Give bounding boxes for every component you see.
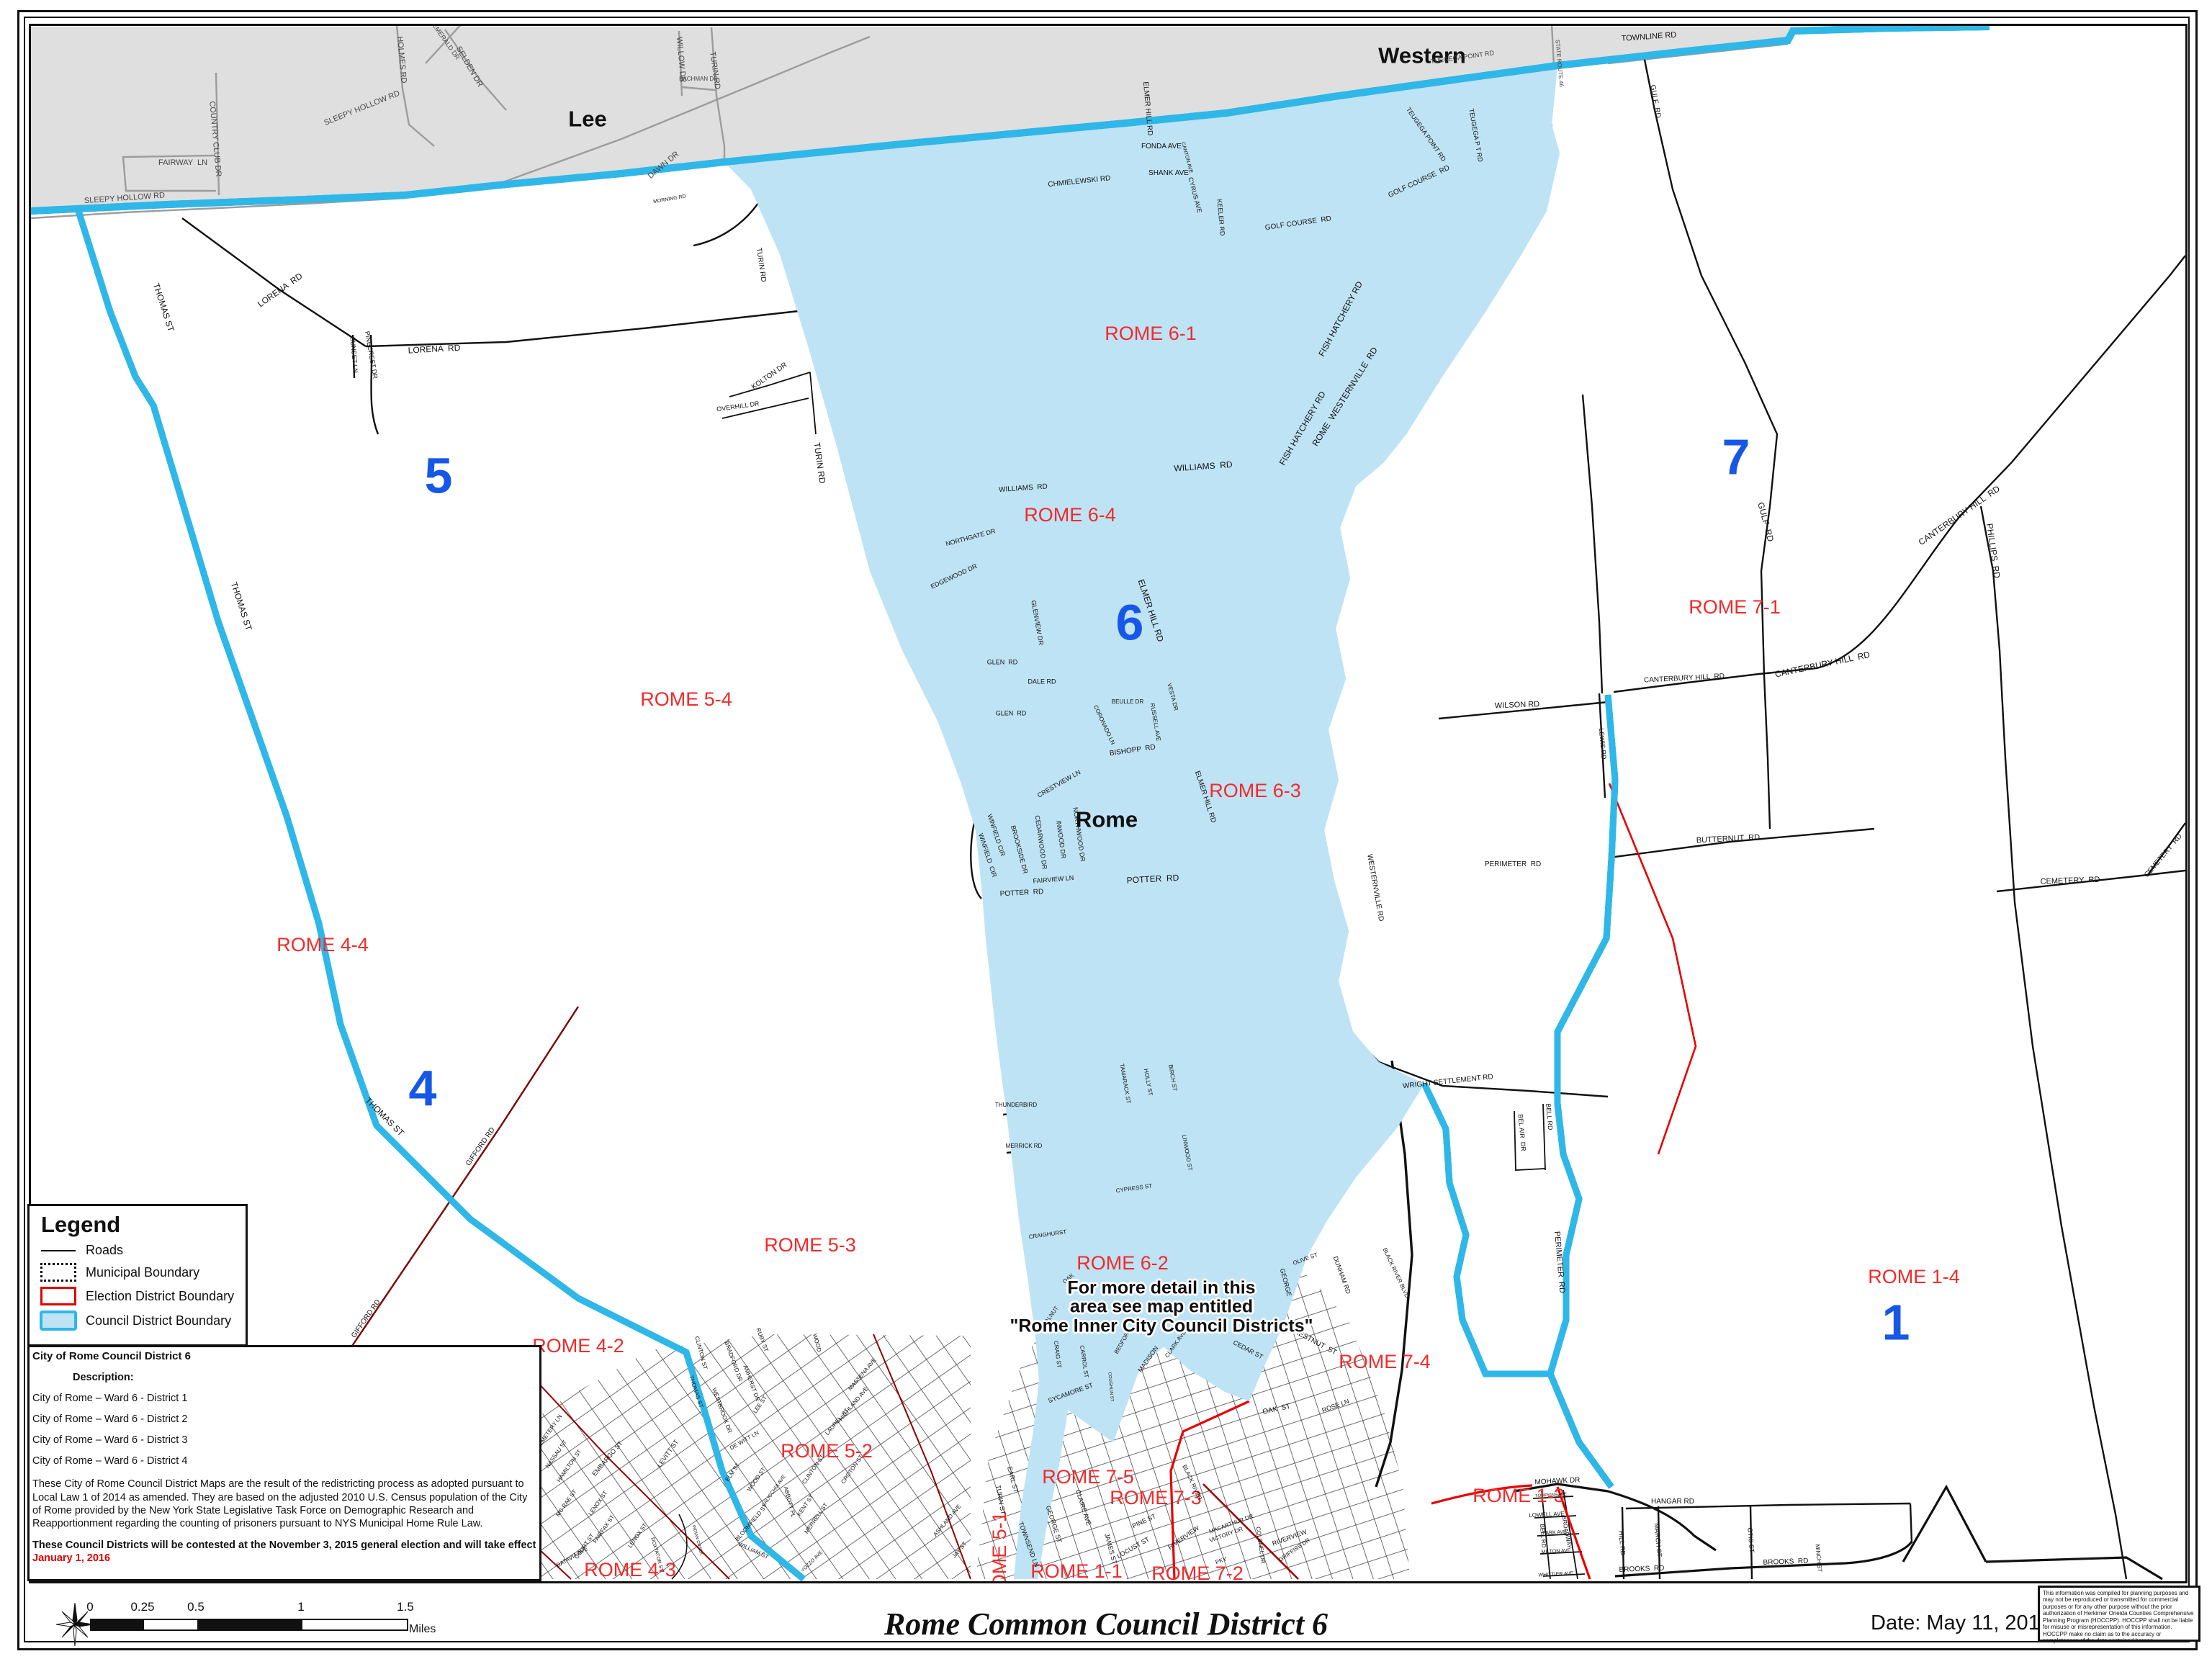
district-line: City of Rome – Ward 6 - District 1 xyxy=(32,1392,539,1405)
legend-item-council-boundary: Council District Boundary xyxy=(40,1310,246,1331)
scale-tick: 1 xyxy=(297,1600,304,1614)
description-paragraph: These City of Rome Council District Maps… xyxy=(32,1478,536,1530)
scale-tick: 0.25 xyxy=(130,1600,154,1614)
legend-item-roads: Roads xyxy=(40,1243,246,1258)
legend: Legend Roads Municipal Boundary Election… xyxy=(27,1204,248,1346)
district-line: City of Rome – Ward 6 - District 3 xyxy=(32,1434,539,1447)
map-date: Date: May 11, 2015 xyxy=(1871,1611,2051,1635)
footer: 00.250.511.5 Miles Rome Common Council D… xyxy=(29,1581,2183,1639)
description-heading: City of Rome Council District 6 xyxy=(32,1350,539,1364)
description-subheading: Description: xyxy=(73,1371,539,1384)
scale-bar xyxy=(90,1619,408,1631)
disclaimer-box: This information was compiled for planni… xyxy=(2038,1586,2200,1642)
scale-tick: 1.5 xyxy=(397,1600,414,1614)
legend-item-municipal-boundary: Municipal Boundary xyxy=(40,1263,246,1282)
legend-title: Legend xyxy=(41,1212,246,1238)
legend-item-election-boundary: Election District Boundary xyxy=(40,1287,246,1305)
scale-tick: 0 xyxy=(86,1600,93,1614)
district-line: City of Rome – Ward 6 - District 4 xyxy=(32,1455,539,1467)
election-boundary-icon xyxy=(40,1287,77,1305)
scale-ticks: 00.250.511.5 xyxy=(29,1600,432,1616)
municipal-boundary-icon xyxy=(40,1263,77,1282)
roads-line-icon xyxy=(40,1250,77,1251)
description-box: City of Rome Council District 6 Descript… xyxy=(27,1345,541,1581)
district-line: City of Rome – Ward 6 - District 2 xyxy=(32,1413,539,1426)
council-boundary-icon xyxy=(40,1310,77,1331)
scale-tick: 0.5 xyxy=(187,1600,204,1614)
effective-date: January 1, 2016 xyxy=(32,1552,536,1565)
map-sheet: LeeWesternRome56741ROME 6-1ROME 6-4ROME … xyxy=(0,0,2212,1659)
scale-unit: Miles xyxy=(409,1623,436,1636)
contest-notice: These Council Districts will be conteste… xyxy=(32,1539,536,1551)
map-title: Rome Common Council District 6 xyxy=(884,1606,1328,1642)
